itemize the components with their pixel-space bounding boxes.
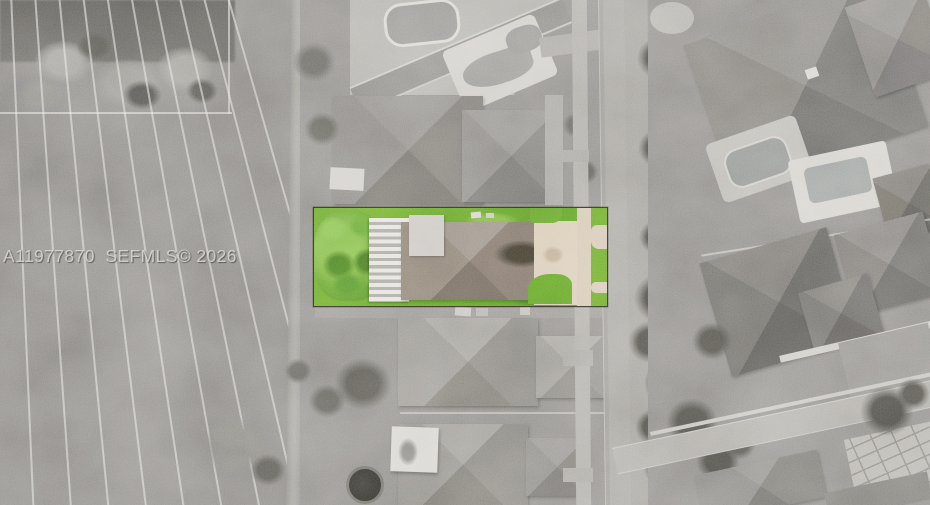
shed-tarp-shading bbox=[398, 438, 418, 466]
fallen-palm bbox=[896, 378, 930, 410]
neighbor-house-roof bbox=[536, 336, 608, 398]
verge-tan-patch bbox=[591, 225, 608, 249]
brush-texture-dark bbox=[76, 32, 112, 60]
parcel-flat-roof-annex bbox=[409, 215, 444, 256]
parcel-tree bbox=[332, 272, 362, 298]
parked-vehicle bbox=[476, 308, 488, 316]
brush-texture-dark bbox=[122, 80, 162, 110]
neighbor-house-roof bbox=[398, 318, 538, 406]
right-block-homes bbox=[648, 0, 930, 505]
tree bbox=[692, 322, 732, 360]
field-tree-dark bbox=[250, 454, 286, 486]
parked-vehicle bbox=[520, 307, 530, 315]
curbside-bin bbox=[471, 211, 482, 218]
white-trailer bbox=[329, 167, 364, 191]
mls-watermark: A11977870 SEFMLS© 2026 bbox=[3, 246, 237, 267]
parcel-tree bbox=[318, 216, 348, 242]
fence-line-horizontal bbox=[0, 112, 232, 114]
driveway-apron bbox=[563, 350, 593, 366]
highlighted-parcel bbox=[313, 207, 608, 307]
driveway-wear bbox=[542, 246, 564, 264]
parcel-sidewalk bbox=[577, 208, 591, 306]
pool-deck bbox=[650, 2, 694, 34]
driveway-apron bbox=[563, 468, 593, 482]
verge-tan-patch bbox=[591, 282, 608, 293]
tree bbox=[284, 358, 312, 384]
parked-vehicle bbox=[455, 306, 472, 316]
round-pool bbox=[346, 466, 384, 504]
tree bbox=[308, 384, 346, 418]
driveway-grass-patch bbox=[528, 274, 572, 304]
driveway-apron bbox=[561, 150, 589, 162]
listing-aerial-photo: A11977870 SEFMLS© 2026 bbox=[0, 0, 930, 505]
curbside-bin bbox=[486, 213, 494, 218]
driveway-grass-patch bbox=[530, 208, 562, 223]
tree bbox=[304, 112, 340, 146]
tree bbox=[292, 42, 336, 82]
